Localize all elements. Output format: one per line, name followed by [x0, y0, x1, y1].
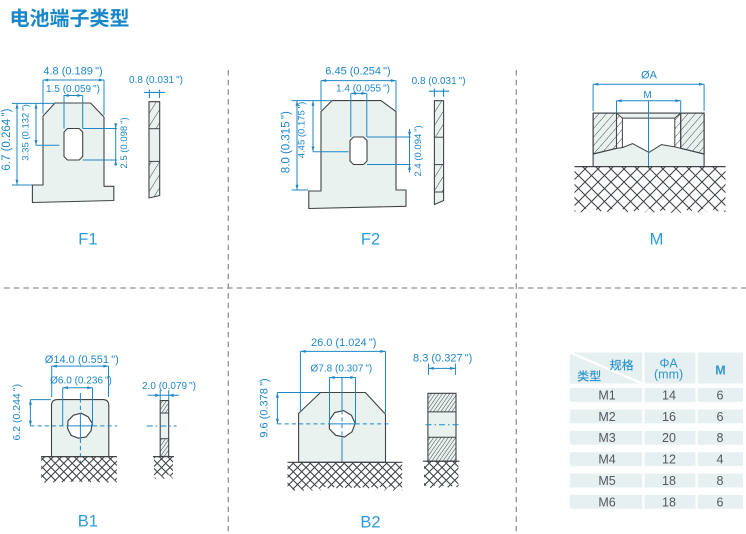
svg-text:M: M: [715, 363, 725, 377]
svg-text:M: M: [643, 90, 651, 101]
svg-text:8: 8: [717, 431, 724, 445]
svg-text:2.4 (0.094 "): 2.4 (0.094 "): [413, 125, 424, 176]
svg-text:8.0 (0.315 "): 8.0 (0.315 "): [281, 111, 293, 173]
svg-text:2.5 (0.098 "): 2.5 (0.098 "): [119, 117, 130, 168]
svg-text:12: 12: [662, 453, 676, 467]
svg-text:M: M: [650, 231, 664, 249]
svg-text:B2: B2: [360, 514, 380, 532]
svg-text:8: 8: [717, 474, 724, 488]
svg-text:Ø14.0 (0.551 "): Ø14.0 (0.551 "): [45, 354, 119, 366]
svg-text:ØA: ØA: [641, 70, 658, 82]
svg-text:F2: F2: [361, 231, 380, 249]
svg-text:M1: M1: [598, 388, 615, 402]
svg-text:(mm): (mm): [654, 368, 683, 382]
svg-text:Ø7.8 (0.307 "): Ø7.8 (0.307 "): [311, 364, 373, 375]
svg-text:26.0 (1.024 "): 26.0 (1.024 "): [311, 337, 376, 349]
svg-text:4.8 (0.189 "): 4.8 (0.189 "): [43, 66, 102, 78]
svg-text:6.45 (0.254 "): 6.45 (0.254 "): [325, 66, 390, 78]
svg-text:M6: M6: [598, 495, 615, 509]
svg-text:M4: M4: [598, 453, 615, 467]
svg-text:M5: M5: [598, 474, 615, 488]
svg-text:F1: F1: [78, 231, 97, 249]
svg-text:18: 18: [662, 495, 676, 509]
svg-text:8.3 (0.327 "): 8.3 (0.327 "): [413, 352, 472, 364]
svg-text:4.45 (0.175 "): 4.45 (0.175 "): [297, 102, 308, 159]
svg-text:1.5 (0.059 "): 1.5 (0.059 "): [46, 84, 100, 95]
svg-text:9.6 (0.378 "): 9.6 (0.378 "): [259, 378, 271, 437]
svg-text:0.8 (0.031 "): 0.8 (0.031 "): [129, 75, 183, 86]
svg-text:6.7 (0.264 "): 6.7 (0.264 "): [1, 108, 13, 170]
svg-text:M3: M3: [598, 431, 615, 445]
svg-text:6: 6: [717, 495, 724, 509]
svg-text:16: 16: [662, 410, 676, 424]
svg-text:20: 20: [662, 431, 676, 445]
svg-text:3.35 (0.132 "): 3.35 (0.132 "): [20, 104, 31, 161]
svg-text:B1: B1: [78, 513, 98, 531]
svg-text:0.8 (0.031 "): 0.8 (0.031 "): [412, 76, 466, 87]
svg-text:M2: M2: [598, 410, 615, 424]
svg-text:6: 6: [717, 388, 724, 402]
svg-text:18: 18: [662, 474, 676, 488]
svg-text:6: 6: [717, 410, 724, 424]
svg-text:Ø6.0 (0.236 "): Ø6.0 (0.236 "): [50, 375, 112, 386]
svg-text:6.2 (0.244 "): 6.2 (0.244 "): [11, 384, 23, 441]
svg-text:14: 14: [662, 388, 676, 402]
svg-text:4: 4: [717, 453, 724, 467]
